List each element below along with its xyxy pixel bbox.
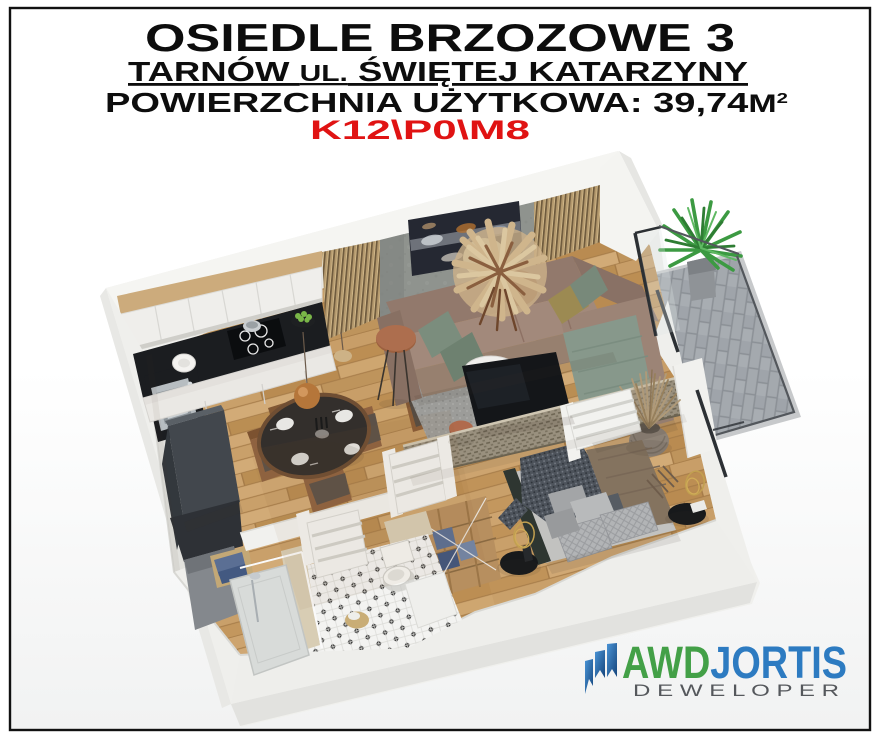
svg-text:POWIERZCHNIA UŻYTKOWA: 39,74M2: POWIERZCHNIA UŻYTKOWA: 39,74M2 [105, 87, 788, 118]
svg-text:K12\P0\M8: K12\P0\M8 [310, 115, 530, 145]
svg-text:TARNÓW UL. ŚWIĘTEJ KATARZYNY: TARNÓW UL. ŚWIĘTEJ KATARZYNY [128, 56, 748, 87]
svg-text:D E W E L O P E R: D E W E L O P E R [633, 682, 839, 700]
svg-text:AWDJORTIS: AWDJORTIS [622, 637, 847, 688]
svg-text:OSIEDLE BRZOZOWE 3: OSIEDLE BRZOZOWE 3 [145, 17, 735, 60]
